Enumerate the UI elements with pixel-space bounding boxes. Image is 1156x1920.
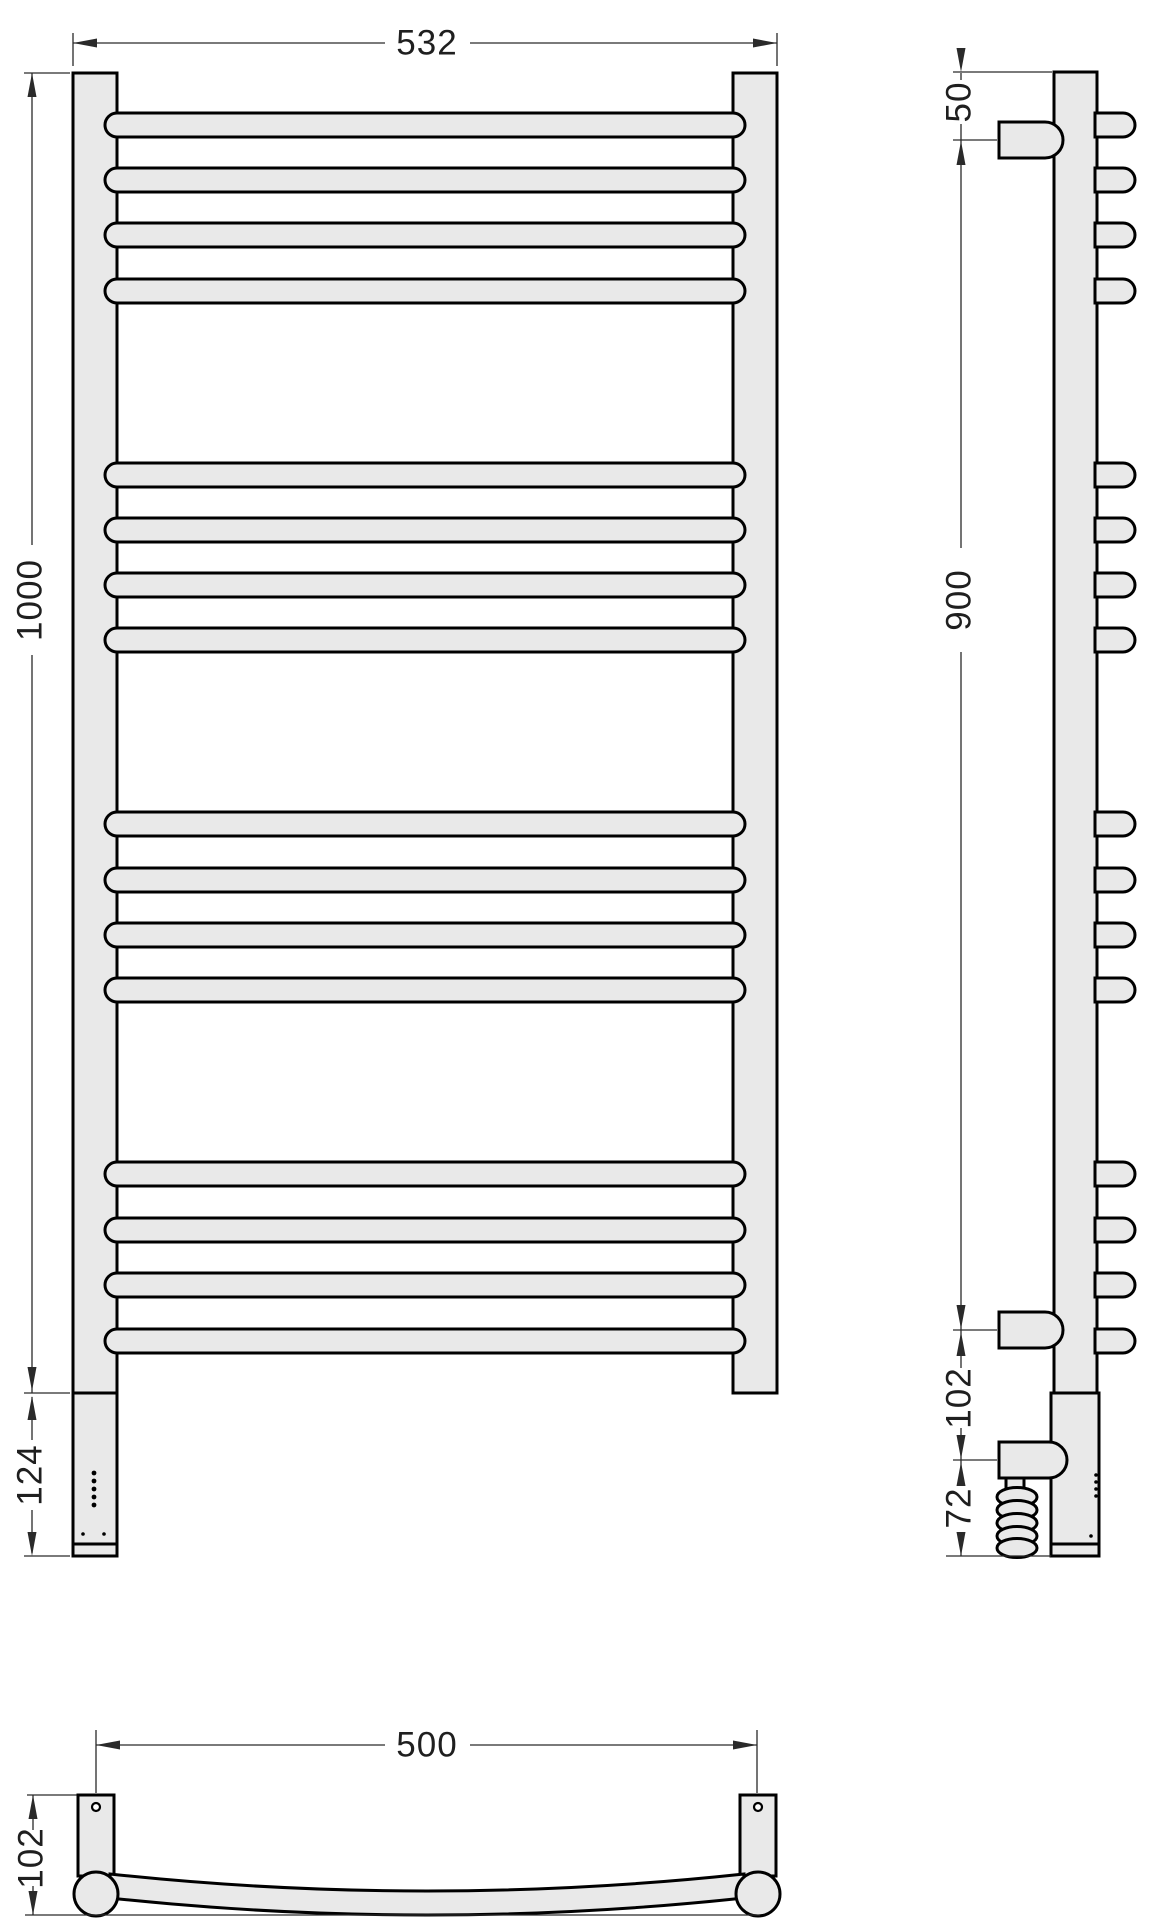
side-heating-unit-cap [1051,1544,1099,1556]
rung [105,168,745,192]
front-rungs [105,113,745,1353]
rung-end [1095,223,1135,247]
arrowhead [29,1891,38,1915]
arrowhead [957,1305,966,1329]
screw-dot [81,1532,85,1536]
indicator-dot [1094,1480,1098,1484]
front-heating-unit-cap [73,1544,117,1556]
indicator-dot [92,1479,97,1484]
dim-bottom-depth-label: 102 [12,1827,51,1888]
rung-end [1095,168,1135,192]
indicator-dot [1094,1487,1098,1491]
rung [105,113,745,137]
side-view [997,72,1135,1558]
rung-end [1095,923,1135,947]
rung [105,1329,745,1353]
dim-side-top-offset-label: 50 [940,82,979,123]
front-view [73,73,777,1556]
drawing-canvas: 532 1000 124 50 900 [0,0,1156,1920]
rung-end [1095,518,1135,542]
left-screw-hole [92,1803,100,1811]
arrowhead [957,1532,966,1556]
rung [105,868,745,892]
arrowhead [957,48,966,72]
dim-front-width-label: 532 [396,24,457,63]
rung-end [1095,279,1135,303]
dim-side-plug-offset-label: 72 [940,1488,979,1529]
arrowhead [96,1741,120,1750]
rung-end [1095,1218,1135,1242]
indicator-dot [92,1487,97,1492]
arrowhead [28,1396,37,1420]
rung [105,1162,745,1186]
arrowhead [957,1435,966,1459]
rung [105,812,745,836]
front-left-post [73,73,117,1393]
dim-side-mount-span-label: 900 [940,569,979,630]
rung [105,1218,745,1242]
right-boss [736,1872,780,1916]
indicator-dot [1094,1473,1098,1477]
dim-bottom-span-label: 500 [396,1726,457,1765]
rung [105,978,745,1002]
dim-front-unit-label: 124 [11,1444,50,1505]
arrowhead [73,39,97,48]
rung-end [1095,628,1135,652]
rung [105,573,745,597]
left-boss [74,1872,118,1916]
indicator-dot [92,1503,97,1508]
rung [105,1273,745,1297]
dimension-annotations: 532 1000 124 50 900 [11,24,1053,1916]
technical-drawing-page: 532 1000 124 50 900 [0,0,1156,1920]
cable-loop [997,1539,1037,1558]
dim-front-height-label: 1000 [11,559,50,641]
rung [105,628,745,652]
rung-end [1095,1162,1135,1186]
side-wall-bracket-top [999,122,1063,158]
indicator-dot [1094,1494,1098,1498]
rung-end [1095,1273,1135,1297]
rung-end [1095,978,1135,1002]
rung-end [1095,812,1135,836]
rung [105,923,745,947]
curved-rail-band [110,1874,744,1915]
rung [105,518,745,542]
rung-end [1095,573,1135,597]
coiled-power-cable [997,1488,1037,1558]
side-tube [1054,72,1097,1393]
arrowhead [28,73,37,97]
side-wall-bracket-bottom [999,1312,1063,1348]
rung [105,223,745,247]
arrowhead [957,1332,966,1356]
side-rung-ends [1095,113,1135,1353]
arrowhead [733,1741,757,1750]
rung-end [1095,463,1135,487]
rung-end [1095,113,1135,137]
front-right-post [733,73,777,1393]
dim-side-lower-offset-label: 102 [940,1367,979,1428]
arrowhead [28,1367,37,1391]
arrowhead [957,1462,966,1486]
rung-end [1095,868,1135,892]
arrowhead [28,1532,37,1556]
arrowhead [753,39,777,48]
front-heating-unit [73,1393,117,1544]
right-screw-hole [754,1803,762,1811]
arrowhead [29,1795,38,1819]
rung [105,463,745,487]
side-plug-module [999,1442,1067,1478]
screw-dot [1089,1534,1093,1538]
rung [105,279,745,303]
indicator-dot [92,1471,97,1476]
rung-end [1095,1329,1135,1353]
indicator-dot [92,1495,97,1500]
bottom-view [25,1795,780,1916]
screw-dot [102,1532,106,1536]
